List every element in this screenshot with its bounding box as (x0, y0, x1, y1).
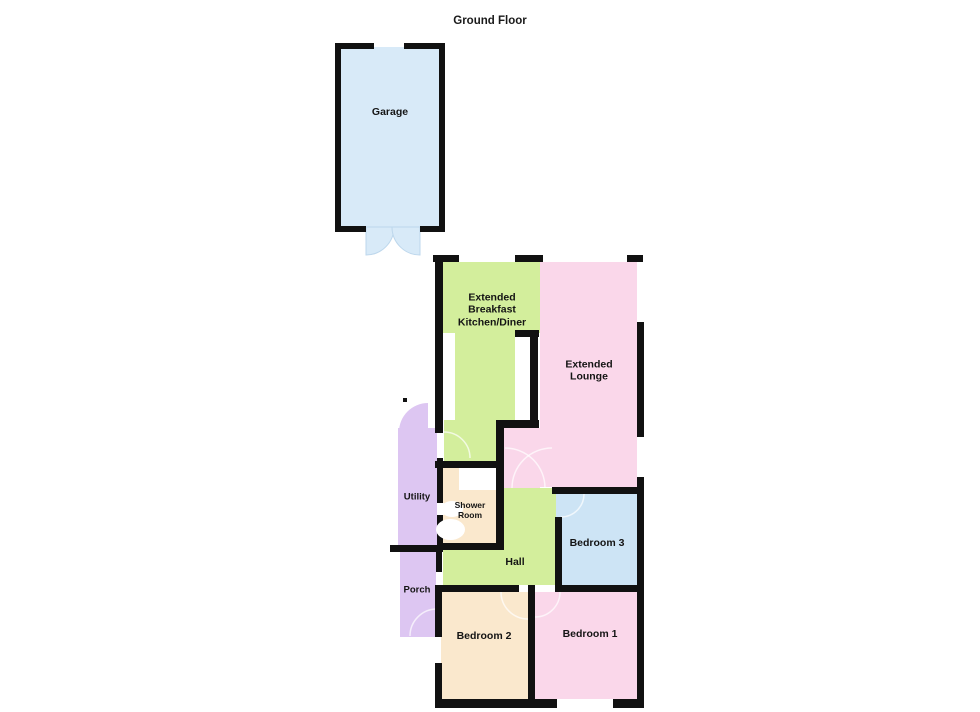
room-label-kitchen: Extended Breakfast Kitchen/Diner (446, 291, 538, 328)
room-label-garage: Garage (372, 106, 408, 118)
wall (439, 43, 445, 232)
lounge-door-swing-right-icon (512, 448, 552, 488)
wall (335, 226, 366, 232)
wall (552, 487, 643, 494)
floor-plan: Ground Floor (0, 0, 980, 712)
room-label-porch: Porch (404, 584, 431, 595)
wall (390, 545, 443, 552)
wall (436, 552, 442, 572)
wall (435, 255, 443, 433)
garage-door-left-icon (366, 227, 394, 255)
room-label-bedroom3: Bedroom 3 (570, 537, 625, 549)
wall (420, 226, 445, 232)
utility-door-leaf (403, 398, 407, 402)
bedroom1-door-swing-icon (535, 592, 560, 617)
toilet-cistern-icon (437, 503, 444, 515)
wall (627, 255, 643, 262)
wall (613, 699, 643, 708)
wall (515, 255, 543, 262)
wall (528, 592, 535, 705)
room-label-shower: Shower Room (447, 500, 493, 520)
door-arcs-layer (0, 0, 980, 712)
wall (637, 477, 644, 708)
garage-door-right-icon (392, 227, 420, 255)
room-label-hall: Hall (505, 556, 524, 568)
bedroom3-door-swing-icon (561, 494, 584, 517)
wall (530, 333, 538, 423)
wall (435, 699, 557, 708)
wall (404, 43, 445, 49)
wall (437, 543, 504, 550)
porch-door-swing-icon (410, 609, 437, 636)
wall (335, 43, 374, 49)
wall (555, 517, 562, 592)
lounge-door-swing-left-icon (505, 448, 545, 488)
wall (335, 43, 341, 232)
utility-door-icon (399, 403, 428, 432)
room-label-bedroom1: Bedroom 1 (563, 628, 618, 640)
floor-title: Ground Floor (0, 15, 980, 27)
wall (435, 461, 504, 468)
wall (637, 322, 644, 437)
room-label-lounge: Extended Lounge (554, 359, 624, 384)
wall (496, 428, 504, 548)
wall (556, 585, 643, 592)
kitchen-door-swing-icon (444, 432, 470, 458)
wall (528, 585, 535, 592)
room-label-bedroom2: Bedroom 2 (457, 630, 512, 642)
bedroom2-door-swing-icon (501, 592, 528, 619)
basin-icon (436, 519, 465, 540)
wall (496, 420, 539, 428)
wall (435, 585, 519, 592)
room-label-utility: Utility (404, 491, 430, 502)
wall (435, 587, 442, 637)
